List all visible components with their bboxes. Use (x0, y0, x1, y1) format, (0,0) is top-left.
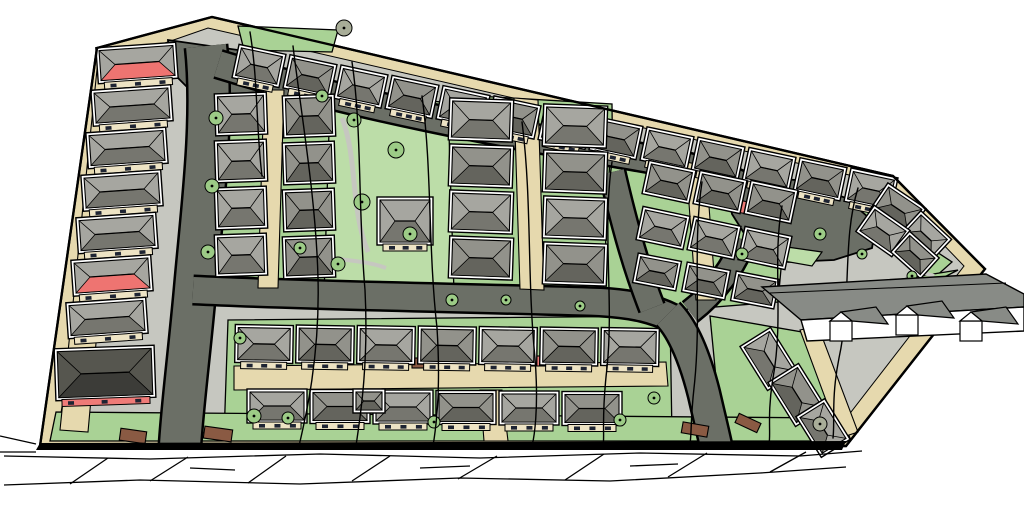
house-d-lower-2-window-2 (416, 425, 422, 429)
tree-center-18 (819, 233, 822, 236)
house-d-upper-0-window-0 (247, 364, 253, 368)
townhouse-west-2-window-1 (125, 167, 131, 171)
sketch-diag-1 (70, 458, 108, 484)
house-d-lower-1-window-1 (337, 425, 343, 429)
sketch-diag-6 (565, 454, 604, 480)
house-a-west-1-ridge (232, 161, 250, 162)
house-b-east-2-ridge (563, 218, 586, 219)
house-d-upper-4-window-0 (491, 366, 497, 370)
sketch-diag-7 (668, 453, 707, 477)
house-a-east-2-ridge (300, 210, 318, 211)
house-d-upper-6-window-2 (642, 367, 648, 371)
tree-center-14 (433, 421, 436, 424)
sketch-stub-1 (0, 436, 36, 444)
townhouse-west-5-window-1 (110, 294, 116, 298)
house-d-upper-3-window-2 (459, 366, 465, 370)
park-gazebo (353, 389, 385, 413)
townhouse-west-2-window-2 (149, 165, 155, 169)
townhouse-west-0-window-0 (110, 83, 116, 87)
park-pavilion-window-0 (389, 246, 395, 250)
house-d-upper-1-window-0 (308, 364, 314, 368)
house-b-west-2-ridge (469, 212, 492, 213)
house-b-east-2 (542, 196, 607, 240)
sketch-diag-4 (352, 456, 390, 481)
house-a-east-3-ridge (300, 257, 318, 258)
tree-center-1 (211, 185, 214, 188)
house-d-upper-3-window-0 (430, 365, 436, 369)
house-a-east-2 (282, 188, 335, 232)
house-d-upper-3 (418, 326, 477, 371)
sketch-street-line-2 (4, 467, 846, 485)
site-plan-rendering (0, 0, 1024, 506)
house-d-lower-0-window-1 (274, 424, 280, 428)
house-d-upper-5-window-2 (581, 367, 587, 371)
townhouse-west-2 (86, 127, 169, 174)
townhouse-west-3-window-1 (120, 209, 126, 213)
townhouse-west-6-window-2 (129, 335, 135, 339)
townhouse-west-4 (76, 212, 159, 259)
house-d-lower-3-window-0 (448, 426, 454, 430)
tree-center-22 (579, 305, 582, 308)
townhouse-west-5 (71, 255, 154, 302)
townhouse-west-4-window-0 (90, 253, 96, 257)
house-d-upper-4-window-1 (505, 366, 511, 370)
clubhouse-entry-window-0 (68, 401, 74, 405)
house-d-lower-1-window-0 (322, 425, 328, 429)
townhouse-west-3-window-2 (144, 208, 150, 212)
tree-center-4 (353, 119, 356, 122)
townhouse-west-3 (81, 170, 164, 217)
house-b-west-3 (448, 236, 513, 280)
house-d-lower-4 (499, 391, 559, 431)
house-d-upper-6-window-1 (627, 367, 633, 371)
sketch-diag-3 (248, 456, 286, 483)
townhouse-west-5-window-0 (85, 296, 91, 300)
townhouse-west-6-window-1 (105, 337, 111, 341)
house-d-lower-4-window-0 (511, 426, 517, 430)
tree-center-5 (395, 149, 398, 152)
house-d-lower-4-window-1 (526, 426, 532, 430)
sketch-mark-2 (420, 466, 470, 468)
house-b-east-3 (542, 242, 607, 286)
townhouse-west-0-window-2 (159, 80, 165, 84)
house-b-west-1-ridge (469, 166, 492, 167)
house-d-upper-4 (479, 326, 538, 371)
house-d-lower-2-window-0 (385, 425, 391, 429)
townhouse-west-1-window-0 (105, 126, 111, 130)
house-d-lower-5-window-1 (589, 427, 595, 431)
tree-center-3 (321, 95, 324, 98)
house-d-upper-2-window-0 (369, 365, 375, 369)
house-b-east-0 (542, 104, 607, 148)
house-a-west-3 (214, 233, 267, 277)
context-gable-house-1-front (830, 321, 852, 341)
townhouse-west-1-window-2 (154, 123, 160, 127)
house-d-upper-1 (296, 325, 355, 370)
tree-center-8 (337, 263, 340, 266)
townhouse-west-4-window-2 (139, 250, 145, 254)
house-d-lower-0-window-0 (259, 424, 265, 428)
house-d-lower-5-window-2 (605, 427, 611, 431)
park-pavilion (377, 197, 433, 251)
townhouse-west-2-window-0 (100, 168, 106, 172)
house-b-east-1-ridge (563, 172, 586, 173)
house-d-upper-5-window-0 (552, 366, 558, 370)
house-a-west-3-ridge (232, 255, 250, 256)
house-d-lower-3 (436, 391, 496, 431)
context-gable-house-2-front (896, 315, 918, 335)
house-d-upper-1-window-1 (322, 364, 328, 368)
house-b-west-2 (448, 190, 513, 234)
house-b-west-0-ridge (469, 120, 492, 121)
clubhouse-entry-window-2 (135, 399, 141, 403)
house-d-lower-3-window-2 (479, 426, 485, 430)
tree-center-10 (451, 299, 454, 302)
house-d-upper-0-window-2 (276, 364, 282, 368)
house-b-east-0-ridge (563, 126, 586, 127)
house-a-west-2-ridge (232, 208, 250, 209)
house-d-lower-3-window-1 (463, 426, 469, 430)
house-d-upper-5 (540, 327, 599, 372)
townhouse-west-1-window-1 (130, 124, 136, 128)
house-d-upper-2-window-1 (383, 365, 389, 369)
house-b-west-3-ridge (469, 258, 492, 259)
clubhouse-entry (54, 345, 156, 406)
tree-center-17 (741, 253, 744, 256)
sketch-mark-1 (190, 468, 235, 470)
house-d-upper-0-window-1 (261, 364, 267, 368)
house-a-west-2 (214, 186, 267, 230)
townhouse-west-6-window-0 (80, 338, 86, 342)
tree-center-0 (215, 117, 218, 120)
townhouse-west-0-window-1 (135, 82, 141, 86)
house-d-upper-1-window-2 (337, 365, 343, 369)
sketch-diag-2 (150, 457, 188, 481)
house-d-lower-5 (562, 392, 622, 432)
tree-center-15 (619, 419, 622, 422)
park-pavilion-window-1 (403, 246, 409, 250)
townhouse-west-3-window-0 (95, 211, 101, 215)
house-d-lower-0-window-2 (290, 424, 296, 428)
sketch-street-line-1 (4, 451, 862, 459)
house-d-lower-5-window-0 (574, 427, 580, 431)
house-a-east-3 (282, 235, 335, 279)
house-d-upper-4-window-2 (520, 366, 526, 370)
house-d-lower-2-window-1 (400, 425, 406, 429)
park-pavilion-window-2 (416, 246, 422, 250)
tree-center-23 (911, 275, 914, 278)
tree-center-24 (819, 423, 822, 426)
townhouse-west-6 (66, 297, 149, 344)
house-b-east-1 (542, 150, 607, 194)
house-d-lower-4-window-2 (542, 426, 548, 430)
tree-center-2 (207, 251, 210, 254)
house-d-upper-6-window-0 (613, 367, 619, 371)
tree-center-13 (287, 417, 290, 420)
sketch-mark-3 (630, 464, 678, 466)
tree-center-12 (253, 415, 256, 418)
tree-center-20 (343, 27, 346, 30)
townhouse-west-1 (91, 85, 174, 132)
tree-center-19 (861, 253, 864, 256)
house-d-upper-5-window-1 (566, 366, 572, 370)
townhouse-west-5-window-2 (134, 293, 140, 297)
house-a-east-0 (282, 94, 335, 138)
house-b-west-1 (448, 144, 513, 188)
clubhouse-entry-window-1 (102, 400, 108, 404)
sketch-diag-5 (458, 456, 497, 479)
house-b-east-3-ridge (563, 264, 586, 265)
house-d-upper-2-window-2 (398, 365, 404, 369)
masterplan-svg (0, 0, 1024, 506)
context-gable-house-3-front (960, 321, 982, 341)
tree-center-7 (409, 233, 412, 236)
townhouse-west-0 (96, 42, 179, 89)
house-a-west-0-ridge (232, 114, 250, 115)
house-b-west-0 (448, 98, 513, 142)
tree-center-21 (505, 299, 508, 302)
tree-center-16 (653, 397, 656, 400)
townhouse-west-4-window-1 (115, 252, 121, 256)
house-d-upper-0 (235, 324, 294, 369)
tree-center-9 (299, 247, 302, 250)
house-d-upper-3-window-1 (444, 365, 450, 369)
tree-center-11 (239, 337, 242, 340)
